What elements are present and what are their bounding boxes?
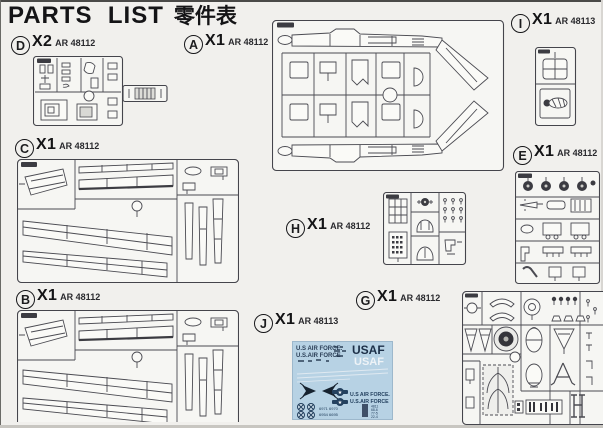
section-letter-c: C xyxy=(15,139,34,158)
section-label-h: H X1 AR 48112 xyxy=(286,215,370,234)
sprue-stamp xyxy=(465,294,478,298)
section-label-c: C X1 AR 48112 xyxy=(15,135,99,154)
sprue-stamp xyxy=(386,195,399,199)
sprue-g-drawing xyxy=(462,291,603,428)
section-qty-a: X1 xyxy=(205,32,225,50)
sprue-stamp xyxy=(21,313,37,318)
section-label-d: D X2 AR 48112 xyxy=(11,32,95,51)
section-code-g: AR 48112 xyxy=(400,293,440,303)
hatch-part xyxy=(77,104,97,120)
decal-airforce-right-2: U.S.AIR FORCE xyxy=(350,399,389,405)
section-code-e: AR 48112 xyxy=(557,148,597,158)
cockpit-tub-part xyxy=(41,100,67,120)
sprue-d-extension xyxy=(123,86,167,102)
section-label-a: A X1 AR 48112 xyxy=(184,31,268,50)
parachute-pack-part xyxy=(483,365,513,415)
section-letter-g: G xyxy=(356,291,375,310)
sprue-a-drawing xyxy=(272,20,505,172)
section-code-j: AR 48113 xyxy=(298,316,338,326)
section-label-g: G X1 AR 48112 xyxy=(356,287,440,306)
decal-serial-mid: 6954 6695 xyxy=(319,412,339,417)
sprue-e-diagram xyxy=(515,171,601,285)
section-qty-g: X1 xyxy=(377,288,397,306)
sprue-d-diagram xyxy=(33,56,168,128)
page-title: PARTS LIST 零件表 xyxy=(8,0,237,30)
sprue-b-diagram xyxy=(17,310,239,422)
sprue-g-diagram xyxy=(462,291,603,428)
section-letter-d: D xyxy=(11,36,30,55)
section-letter-i: I xyxy=(511,14,530,33)
decal-usaf-white: USAF xyxy=(354,356,384,368)
canopy-part xyxy=(543,59,567,79)
sprue-stamp xyxy=(277,23,294,28)
section-letter-h: H xyxy=(286,219,305,238)
section-label-e: E X1 AR 48112 xyxy=(513,142,597,161)
decal-sheet: U.S AIR FORCE. U.S.AIR FORCE USAF USAF ★… xyxy=(292,341,393,420)
sprue-stamp xyxy=(37,59,51,64)
section-letter-j: J xyxy=(254,314,273,333)
decal-usaf-dark: USAF xyxy=(352,343,385,357)
section-qty-h: X1 xyxy=(307,216,327,234)
page-title-en: PARTS LIST xyxy=(8,2,164,30)
section-qty-d: X2 xyxy=(32,33,52,51)
section-qty-e: X1 xyxy=(534,143,554,161)
sprue-c-drawing xyxy=(17,159,239,283)
section-code-d: AR 48112 xyxy=(55,38,95,48)
section-code-a: AR 48112 xyxy=(228,37,268,47)
section-code-i: AR 48113 xyxy=(555,16,595,26)
sprue-b-drawing xyxy=(17,310,239,422)
parts-list-page: PARTS LIST 零件表 D X2 AR 48112 A X1 AR 481… xyxy=(0,0,603,428)
section-qty-b: X1 xyxy=(37,287,57,305)
sprue-i-diagram xyxy=(535,47,577,127)
section-qty-j: X1 xyxy=(275,311,295,329)
scan-edge-left xyxy=(0,0,1,428)
decal-serial-left: 6971 6970 xyxy=(319,406,339,411)
section-letter-a: A xyxy=(184,35,203,54)
section-qty-i: X1 xyxy=(532,11,552,29)
decal-airforce-top-2: U.S.AIR FORCE xyxy=(296,353,341,359)
sprue-stamp xyxy=(538,50,550,54)
svg-text:★: ★ xyxy=(338,400,343,406)
decal-number-4: 22-4 xyxy=(371,415,378,419)
svg-text:★: ★ xyxy=(338,390,343,396)
section-label-b: B X1 AR 48112 xyxy=(16,286,100,305)
decal-airforce-right-1: U.S AIR FORCE. xyxy=(350,392,390,398)
section-letter-e: E xyxy=(513,146,532,165)
sprue-d-drawing xyxy=(33,56,168,128)
section-label-j: J X1 AR 48113 xyxy=(254,310,338,329)
page-title-zh: 零件表 xyxy=(174,0,237,30)
decal-dark-block xyxy=(362,404,368,417)
sprue-stamp xyxy=(518,174,532,179)
section-code-h: AR 48112 xyxy=(330,221,370,231)
section-label-i: I X1 AR 48113 xyxy=(511,10,595,29)
decal-sheet-drawing: U.S AIR FORCE. U.S.AIR FORCE USAF USAF ★… xyxy=(292,341,393,420)
runner-hub xyxy=(383,88,397,102)
section-qty-c: X1 xyxy=(36,136,56,154)
sprue-stamp xyxy=(21,162,37,167)
sprue-h-drawing xyxy=(383,192,467,266)
sprue-c-diagram xyxy=(17,159,239,283)
section-code-b: AR 48112 xyxy=(60,292,100,302)
section-code-c: AR 48112 xyxy=(59,141,99,151)
sprue-h-diagram xyxy=(383,192,467,266)
runner-hub xyxy=(510,352,520,362)
section-letter-b: B xyxy=(16,290,35,309)
sprue-e-drawing xyxy=(515,171,601,285)
sprue-i-drawing xyxy=(535,47,577,127)
tire-part xyxy=(494,327,518,351)
sprue-a-diagram xyxy=(272,20,505,172)
